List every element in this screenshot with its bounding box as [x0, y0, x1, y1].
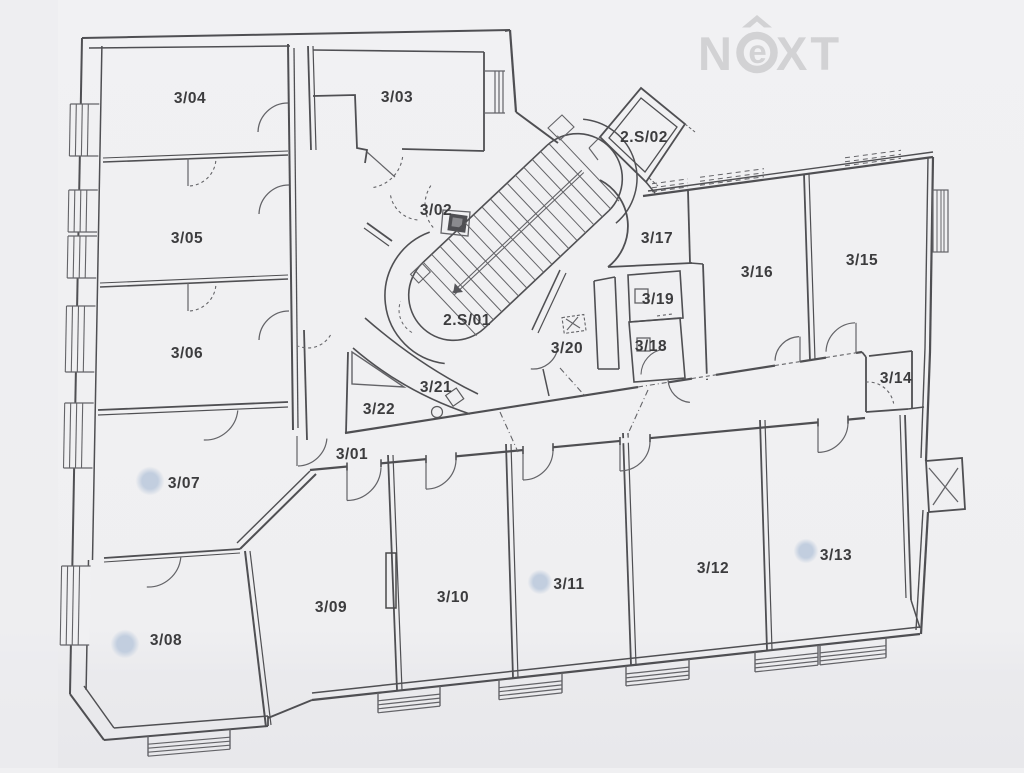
svg-text:3/21: 3/21	[420, 379, 452, 396]
svg-text:3/06: 3/06	[171, 345, 203, 362]
svg-text:3/03: 3/03	[381, 89, 413, 106]
svg-text:3/22: 3/22	[363, 401, 395, 418]
svg-text:3/01: 3/01	[336, 446, 368, 463]
svg-text:3/04: 3/04	[174, 90, 206, 107]
svg-text:3/14: 3/14	[880, 370, 912, 387]
svg-text:3/18: 3/18	[635, 338, 667, 355]
svg-text:3/07: 3/07	[168, 475, 200, 492]
svg-text:3/02: 3/02	[420, 202, 452, 219]
svg-text:3/10: 3/10	[437, 589, 469, 606]
svg-text:3/19: 3/19	[642, 291, 674, 308]
svg-text:3/08: 3/08	[150, 632, 182, 649]
svg-text:3/16: 3/16	[741, 264, 773, 281]
svg-text:XT: XT	[776, 27, 842, 80]
svg-text:3/05: 3/05	[171, 230, 203, 247]
svg-text:e: e	[748, 33, 766, 70]
svg-text:3/13: 3/13	[820, 547, 852, 564]
svg-text:2.S/02: 2.S/02	[620, 129, 668, 146]
svg-text:N: N	[698, 27, 732, 80]
svg-text:3/17: 3/17	[641, 230, 673, 247]
svg-text:3/09: 3/09	[315, 599, 347, 616]
svg-text:2.S/01: 2.S/01	[443, 312, 491, 329]
svg-text:3/12: 3/12	[697, 560, 729, 577]
svg-text:3/11: 3/11	[553, 576, 584, 593]
svg-text:3/20: 3/20	[551, 340, 583, 357]
svg-text:3/15: 3/15	[846, 252, 878, 269]
